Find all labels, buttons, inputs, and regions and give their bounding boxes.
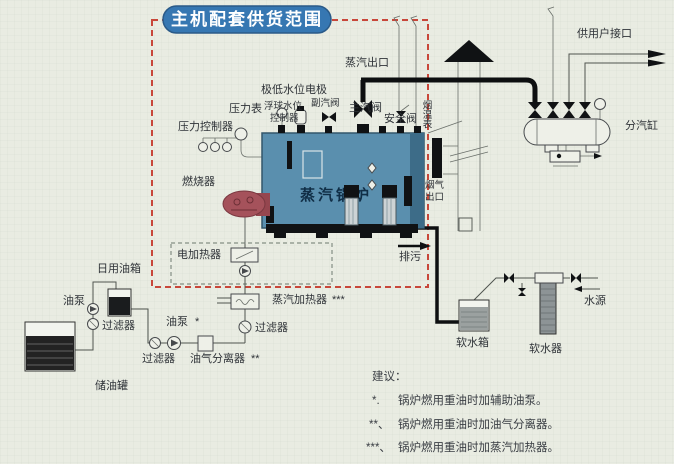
- label-soft-water-tank: 软水箱: [456, 335, 489, 349]
- label-low-water-electrode: 极低水位电极: [261, 82, 327, 96]
- label-electric-heater: 电加热器: [177, 248, 221, 261]
- label-flue-outlet-1: 烟气: [425, 179, 445, 191]
- label-pressure-controller: 压力控制器: [178, 119, 233, 133]
- steam-heater-symbol: [231, 294, 259, 309]
- label-steam-heater: 蒸汽加热器***: [272, 292, 346, 306]
- title-capsule: 主机配套供货范围: [163, 6, 331, 33]
- label-blowdown: 排污: [399, 249, 421, 263]
- steam-trap: [550, 151, 580, 162]
- steam-heater-text: 蒸汽加热器: [272, 292, 327, 306]
- label-oil-pump-aux: 油泵*: [166, 314, 200, 328]
- note-marker: *.: [372, 395, 380, 407]
- soft-water-tank: [459, 300, 489, 331]
- note-marker: **、: [369, 419, 389, 431]
- oil-pump-aux-marker: *: [195, 316, 200, 328]
- label-burner: 燃烧器: [182, 174, 215, 188]
- boiler-name-label: 蒸汽锅炉: [300, 186, 372, 204]
- pressure-gauge-icon: [595, 99, 606, 110]
- flue-connection: [432, 138, 442, 178]
- label-steam-cylinder: 分汽缸: [625, 118, 658, 132]
- label-oil-storage-tank: 储油罐: [95, 378, 128, 392]
- label-user-port: 供用户接口: [577, 26, 632, 40]
- note-item: *.锅炉燃用重油时加辅助油泵。: [372, 393, 548, 407]
- label-safety-valve: 安全阀: [384, 111, 417, 125]
- label-filter-c: 过滤器: [255, 321, 288, 334]
- oil-pump-aux-text: 油泵: [166, 314, 188, 328]
- boiler-body: 蒸汽锅炉: [262, 133, 424, 228]
- diagram-title: 主机配套供货范围: [171, 9, 323, 29]
- label-daily-oil-tank: 日用油箱: [97, 261, 141, 275]
- note-marker: ***、: [366, 442, 391, 454]
- label-main-steam-valve: 主汽阀: [349, 100, 382, 114]
- daily-oil-tank: [108, 289, 131, 316]
- separator-marker: **: [251, 353, 260, 365]
- pressure-gauge-icon: [235, 128, 247, 140]
- label-steam-outlet: 蒸汽出口: [345, 55, 389, 69]
- note-item: **、锅炉燃用重油时加油气分离器。: [369, 417, 559, 431]
- label-flue-outlet-2: 出口: [425, 191, 444, 203]
- fuel-filter-c: [239, 321, 251, 333]
- separator-text: 油气分离器: [190, 351, 245, 365]
- notes-heading: 建议：: [372, 369, 407, 383]
- scanned-boiler-diagram: 蒸汽锅炉: [0, 0, 674, 464]
- oil-gas-separator-icon: [198, 336, 213, 351]
- burner-unit: [223, 191, 270, 217]
- softener-head: [535, 273, 563, 283]
- label-filter-a: 过滤器: [102, 319, 135, 332]
- steam-heater-marker: ***: [332, 294, 346, 306]
- note-text: 锅炉燃用重油时加油气分离器。: [398, 417, 559, 431]
- label-water-softener: 软水器: [529, 341, 562, 355]
- oil-storage-tank: [25, 322, 75, 371]
- note-text: 锅炉燃用重油时加辅助油泵。: [398, 393, 548, 407]
- label-float-controller-1: 浮球水位: [264, 100, 303, 112]
- label-water-source: 水源: [584, 293, 606, 307]
- label-oil-pump: 油泵: [63, 293, 85, 307]
- note-text: 锅炉燃用重油时加蒸汽加热器。: [398, 440, 559, 454]
- label-filter-b: 过滤器: [142, 352, 175, 365]
- low-water-electrode-probe: [287, 141, 292, 169]
- label-aux-steam-valve: 副汽阀: [311, 97, 340, 109]
- label-flue-temp-gauge: 烟温表: [421, 99, 433, 129]
- diagram-canvas: 蒸汽锅炉: [0, 0, 674, 464]
- label-pressure-gauge: 压力表: [229, 101, 262, 115]
- label-float-controller-2: 控制器: [270, 112, 299, 124]
